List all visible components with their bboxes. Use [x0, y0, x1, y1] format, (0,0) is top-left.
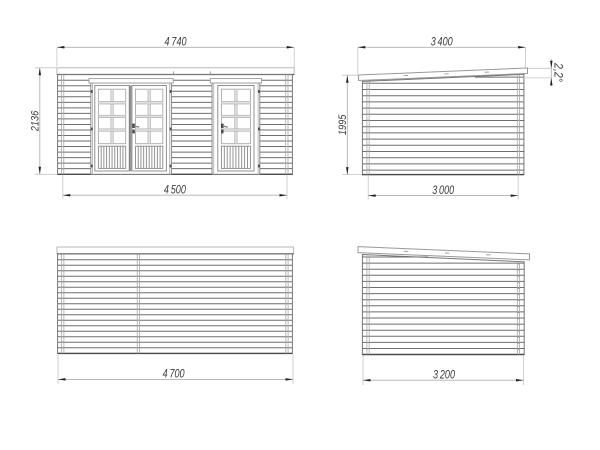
svg-text:3 400: 3 400: [431, 37, 453, 49]
svg-text:3 200: 3 200: [433, 370, 455, 382]
svg-text:3 000: 3 000: [432, 185, 454, 197]
svg-text:2,2°: 2,2°: [552, 62, 564, 82]
svg-text:4 500: 4 500: [164, 185, 186, 197]
svg-text:1995: 1995: [337, 114, 349, 135]
svg-text:4 740: 4 740: [165, 37, 187, 49]
svg-text:2136: 2136: [29, 110, 41, 132]
svg-text:4 700: 4 700: [163, 368, 185, 380]
